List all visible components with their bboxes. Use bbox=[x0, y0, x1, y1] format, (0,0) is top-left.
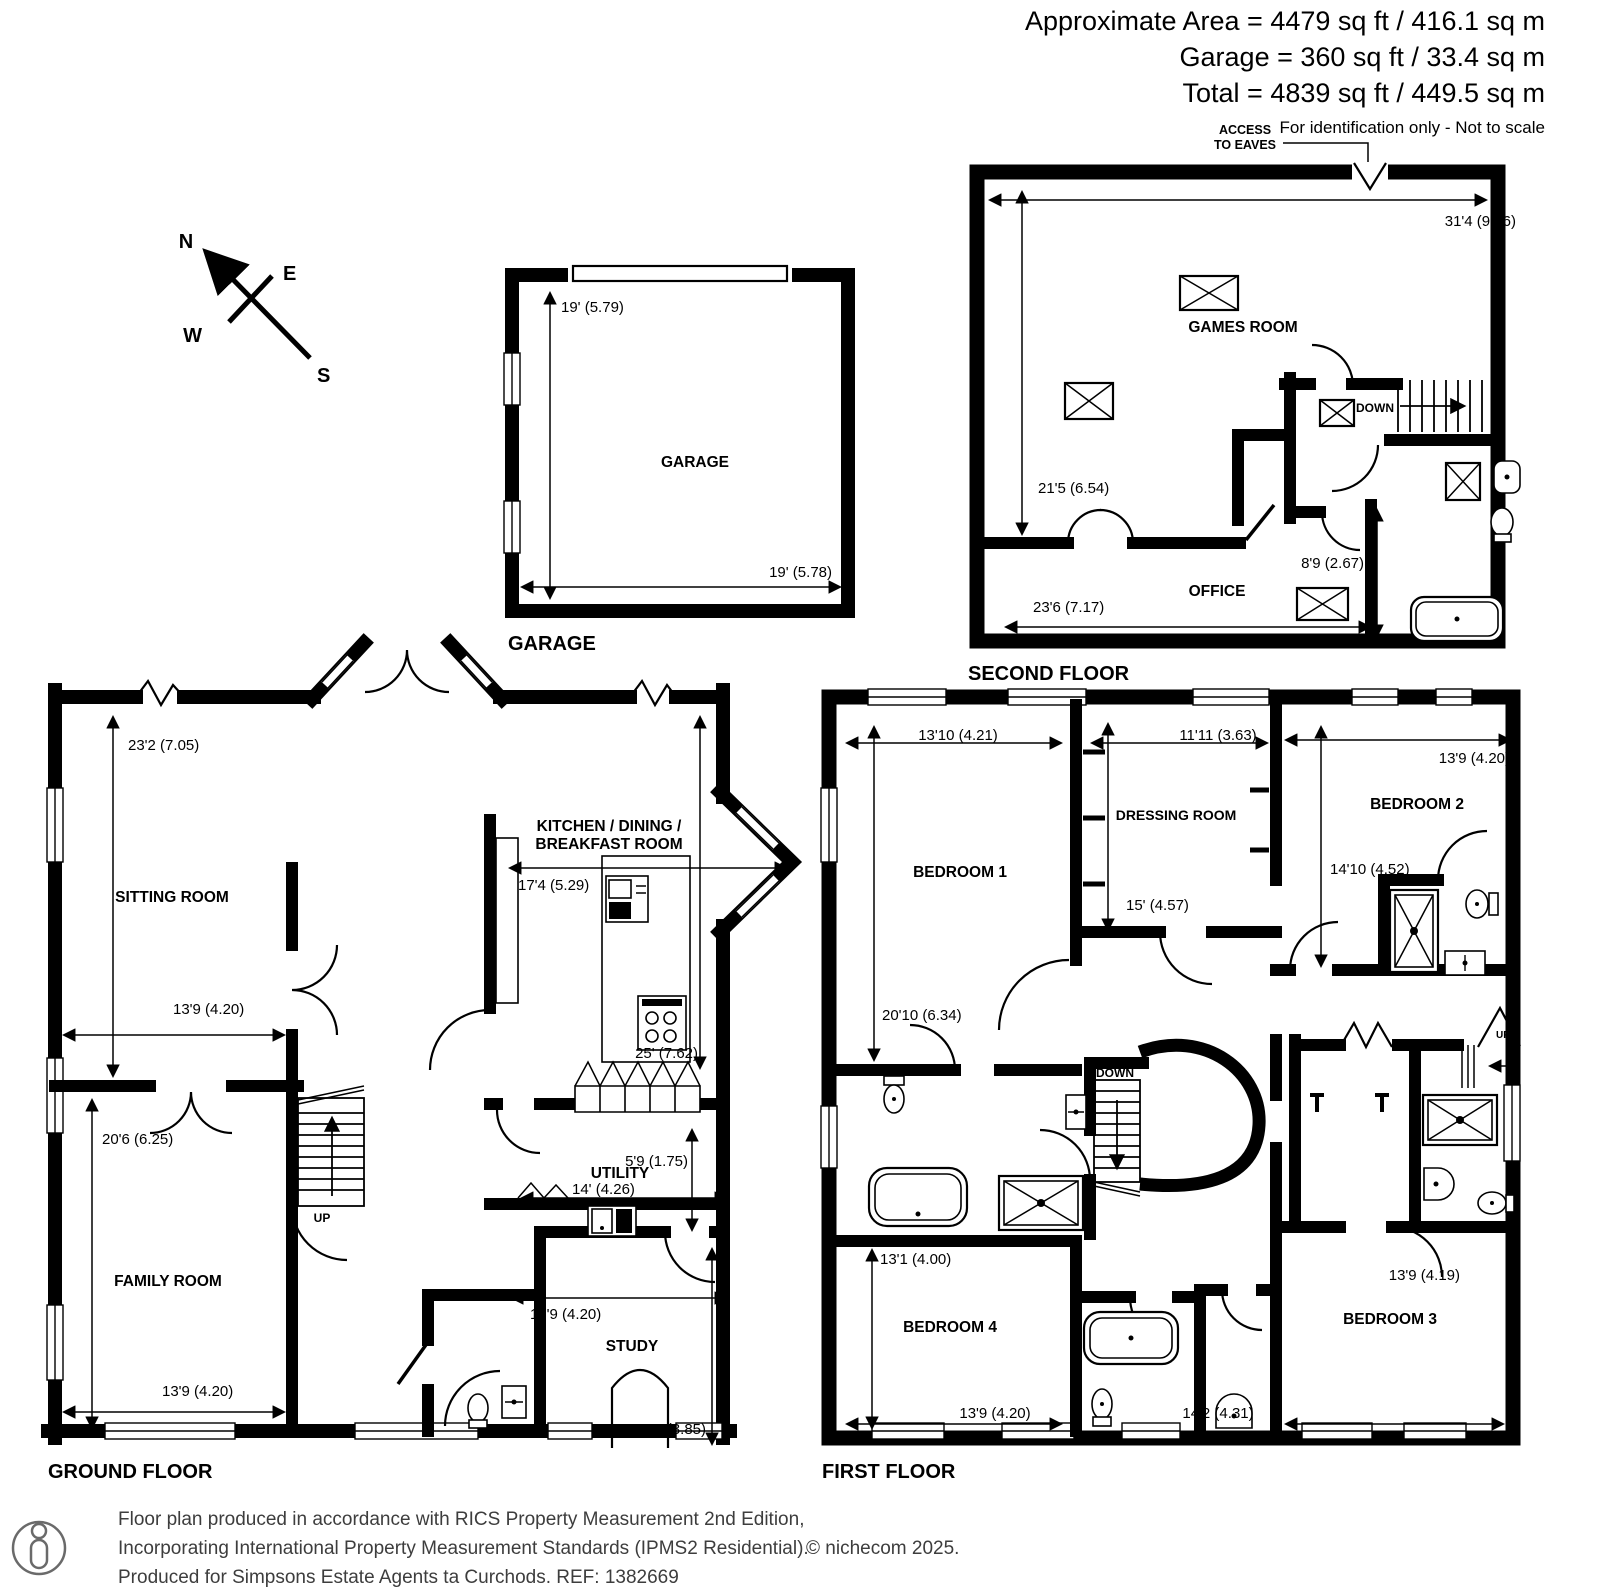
footer: Floor plan produced in accordance with R… bbox=[13, 1509, 959, 1588]
shower-symbol bbox=[1423, 1095, 1497, 1145]
dressing-door-arc bbox=[1160, 932, 1212, 984]
utility-door-arc bbox=[497, 1110, 540, 1153]
compass-n: N bbox=[179, 231, 193, 253]
garage-walls bbox=[512, 275, 848, 611]
garage-width-dim: 19' (5.78) bbox=[769, 564, 832, 581]
window bbox=[1002, 1423, 1074, 1439]
sitting-width-dim: 13'9 (4.20) bbox=[173, 1001, 244, 1018]
skylight-symbol bbox=[1320, 400, 1354, 426]
stove-symbol bbox=[638, 996, 686, 1050]
study-top-wall bbox=[540, 1232, 723, 1295]
bedroom4-width-dim: 13'9 (4.20) bbox=[959, 1405, 1030, 1422]
garage-plan: 19' (5.79) 19' (5.78) GARAGE GARAGE bbox=[504, 266, 848, 655]
total-area-text: Total = 4839 sq ft / 449.5 sq m bbox=[1183, 78, 1545, 108]
second-floor-title: SECOND FLOOR bbox=[968, 663, 1130, 685]
utility-sink-symbol bbox=[588, 1206, 636, 1236]
bedroom3-label: BEDROOM 3 bbox=[1343, 1311, 1437, 1328]
stairs-up-symbol bbox=[298, 1086, 364, 1206]
shower-symbol bbox=[1390, 890, 1438, 972]
window bbox=[105, 1423, 235, 1439]
landing-door-arc bbox=[999, 960, 1069, 1030]
kitchen-tall-unit bbox=[496, 838, 518, 1003]
sink-symbol bbox=[502, 1386, 526, 1418]
eaves-closet-walls bbox=[1238, 435, 1290, 520]
skylight-symbol bbox=[1297, 588, 1348, 620]
window bbox=[504, 501, 520, 553]
access-to-eaves-label2: TO EAVES bbox=[1214, 138, 1276, 152]
eaves-notch-gap bbox=[1352, 162, 1388, 183]
dressing-width-dim: 11'11 (3.63) bbox=[1179, 727, 1256, 744]
study-label: STUDY bbox=[606, 1338, 659, 1355]
window bbox=[1436, 689, 1472, 705]
sink-symbol bbox=[1066, 1095, 1086, 1129]
compass-e: E bbox=[283, 263, 296, 285]
kitchen-door-arc bbox=[430, 1010, 490, 1070]
window bbox=[868, 689, 946, 705]
floorplan-page: Approximate Area = 4479 sq ft / 416.1 sq… bbox=[0, 0, 1600, 1592]
garage-area-text: Garage = 360 sq ft / 33.4 sq m bbox=[1180, 42, 1545, 72]
window bbox=[47, 1305, 63, 1380]
office-label: OFFICE bbox=[1189, 583, 1246, 600]
bedroom2-label: BEDROOM 2 bbox=[1370, 796, 1464, 813]
window bbox=[736, 807, 779, 849]
compass-w: W bbox=[183, 325, 202, 347]
window bbox=[1122, 1423, 1180, 1439]
garage-room-label: GARAGE bbox=[661, 454, 729, 471]
window bbox=[548, 1423, 592, 1439]
closet-rail-marks bbox=[1310, 1095, 1389, 1112]
window bbox=[1352, 689, 1398, 705]
bathtub-symbol bbox=[1411, 597, 1503, 641]
sitting-depth-dim: 23'2 (7.05) bbox=[128, 737, 199, 754]
office-top-wall bbox=[1290, 505, 1320, 518]
floorplan-drawing: Approximate Area = 4479 sq ft / 416.1 sq… bbox=[0, 0, 1600, 1592]
toilet-symbol bbox=[1491, 508, 1513, 542]
bathtub-symbol bbox=[869, 1168, 967, 1226]
games-depth-dim: 21'5 (6.54) bbox=[1038, 480, 1109, 497]
footer-line3: Produced for Simpsons Estate Agents ta C… bbox=[118, 1567, 679, 1588]
shower-symbol bbox=[1446, 463, 1480, 500]
window bbox=[1404, 1423, 1466, 1439]
garage-floor-title: GARAGE bbox=[508, 633, 596, 655]
toilet-symbol bbox=[468, 1394, 488, 1428]
bathroom1-door-arc bbox=[1040, 1130, 1090, 1180]
family-depth-dim: 20'6 (6.25) bbox=[102, 1131, 173, 1148]
bedroom1-width-dim: 13'10 (4.21) bbox=[918, 727, 998, 744]
header: Approximate Area = 4479 sq ft / 416.1 sq… bbox=[1025, 6, 1545, 176]
dressing-depth-dim: 15' (4.57) bbox=[1126, 897, 1189, 914]
family-width-dim: 13'9 (4.20) bbox=[162, 1383, 233, 1400]
footer-line1: Floor plan produced in accordance with R… bbox=[118, 1509, 804, 1530]
bathroom-door-arc bbox=[1332, 445, 1378, 491]
bedroom2-door-arc bbox=[1290, 922, 1338, 970]
office-depth-dim: 8'9 (2.67) bbox=[1301, 555, 1364, 572]
window bbox=[47, 1058, 63, 1133]
study-width-dim: 13'9 (4.20) bbox=[530, 1306, 601, 1323]
family-room-label: FAMILY ROOM bbox=[114, 1273, 222, 1290]
kitchen-width-dim: 17'4 (5.29) bbox=[518, 877, 589, 894]
sink-symbol bbox=[1445, 951, 1485, 975]
kitchen-counter bbox=[575, 1062, 700, 1112]
stairs-down-label: DOWN bbox=[1096, 1066, 1134, 1080]
office-width-dim: 23'6 (7.17) bbox=[1033, 599, 1104, 616]
bedroom3-depth-dim: 13'9 (4.19) bbox=[1389, 1267, 1460, 1284]
toilet-symbol bbox=[1466, 890, 1498, 918]
skylight-symbol bbox=[1180, 276, 1238, 310]
dressing-room-label: DRESSING ROOM bbox=[1116, 807, 1237, 823]
stairs-down-label: DOWN bbox=[1356, 401, 1394, 415]
kitchen-label-line1: KITCHEN / DINING / bbox=[537, 818, 682, 835]
skylight-symbol bbox=[1065, 383, 1113, 419]
window bbox=[1504, 1085, 1520, 1161]
first-floor-plan: DOWN UP bbox=[821, 689, 1520, 1483]
stairs-down-symbol bbox=[1398, 380, 1482, 432]
garage-door bbox=[573, 266, 787, 281]
window bbox=[355, 1423, 478, 1439]
footer-copyright: © nichecom 2025. bbox=[806, 1538, 959, 1559]
wall-break-symbol bbox=[136, 681, 184, 705]
shower-symbol bbox=[999, 1176, 1083, 1230]
sitting-room-label: SITTING ROOM bbox=[115, 889, 229, 906]
bedroom2-depth-dim: 14'10 (4.52) bbox=[1330, 861, 1410, 878]
study-door-arc bbox=[665, 1232, 715, 1282]
curved-landing-wall bbox=[1140, 1045, 1259, 1185]
disclaimer-text: For identification only - Not to scale bbox=[1279, 118, 1545, 137]
bedroom1-door-arc bbox=[910, 1025, 955, 1070]
stairs-up-label: UP bbox=[314, 1211, 331, 1225]
family-double-door-arcs bbox=[150, 1092, 232, 1133]
window bbox=[1302, 1423, 1372, 1439]
window bbox=[1193, 689, 1269, 705]
kitchen-island bbox=[602, 856, 690, 1062]
window bbox=[736, 875, 779, 917]
compass-s: S bbox=[317, 365, 330, 387]
gf-kitchen-bay-walls bbox=[720, 792, 792, 932]
ground-floor-title: GROUND FLOOR bbox=[48, 1461, 213, 1483]
bedroom3-width-dim: 14'2 (4.31) bbox=[1182, 1405, 1253, 1422]
stairs-down-symbol bbox=[1094, 1080, 1140, 1196]
entrance-double-door-arcs bbox=[365, 650, 449, 692]
compass-rose: N E W S bbox=[179, 231, 331, 387]
window bbox=[322, 655, 353, 688]
window bbox=[821, 1106, 837, 1168]
person-scale-icon bbox=[13, 1522, 65, 1574]
study-depth-dim: 12'8 (3.85) bbox=[635, 1421, 706, 1438]
games-room-label: GAMES ROOM bbox=[1188, 319, 1297, 336]
closet-door-leaf bbox=[1246, 505, 1274, 540]
bedroom1-label: BEDROOM 1 bbox=[913, 864, 1007, 881]
window bbox=[504, 353, 520, 405]
window bbox=[821, 788, 837, 862]
sf-width-dim: 31'4 (9.56) bbox=[1445, 213, 1516, 230]
toilet-symbol bbox=[1092, 1389, 1112, 1426]
sink-symbol bbox=[1494, 461, 1520, 493]
second-floor-plan: DOWN 31'4 (9.56) 21'5 (6.54) 23'6 (7.17)… bbox=[968, 162, 1520, 685]
garage-depth-dim: 19' (5.79) bbox=[561, 299, 624, 316]
utility-counter-marks bbox=[518, 1183, 568, 1198]
sink-symbol bbox=[1424, 1168, 1454, 1200]
bedroom1-depth-dim: 20'10 (6.34) bbox=[882, 1007, 962, 1024]
kitchen-label-line2: BREAKFAST ROOM bbox=[535, 836, 682, 853]
toilet-symbol bbox=[1478, 1192, 1514, 1214]
wc-door-leaf bbox=[398, 1342, 428, 1384]
stairs-up-label: UP bbox=[1496, 1030, 1510, 1041]
bedroom2-width-dim: 13'9 (4.20) bbox=[1439, 750, 1510, 767]
ground-floor-plan: UP bbox=[47, 643, 792, 1483]
window bbox=[872, 1423, 944, 1439]
window bbox=[461, 655, 492, 688]
kitchen-depth-dim: 25' (7.62) bbox=[635, 1045, 698, 1062]
ensuite2-door-arc bbox=[1438, 831, 1487, 880]
utility-label: UTILITY bbox=[591, 1165, 650, 1182]
footer-line2: Incorporating International Property Mea… bbox=[118, 1538, 809, 1559]
kitchen-sink-symbol bbox=[606, 876, 648, 922]
window bbox=[47, 788, 63, 862]
office-double-door-arcs bbox=[1068, 510, 1133, 543]
office-door-arc bbox=[1322, 512, 1360, 550]
bathtub-symbol bbox=[1084, 1312, 1178, 1364]
sitting-double-door-arcs bbox=[292, 945, 337, 1035]
first-floor-title: FIRST FLOOR bbox=[822, 1461, 956, 1483]
bedroom4-depth-dim: 13'1 (4.00) bbox=[880, 1251, 951, 1268]
closet-hanging-marks bbox=[1340, 1023, 1392, 1047]
bedroom4-label: BEDROOM 4 bbox=[903, 1319, 997, 1336]
approx-area-text: Approximate Area = 4479 sq ft / 416.1 sq… bbox=[1025, 6, 1545, 36]
access-to-eaves-label: ACCESS bbox=[1219, 123, 1271, 137]
utility-width-dim: 14' (4.26) bbox=[572, 1181, 635, 1198]
toilet-symbol bbox=[884, 1076, 904, 1113]
